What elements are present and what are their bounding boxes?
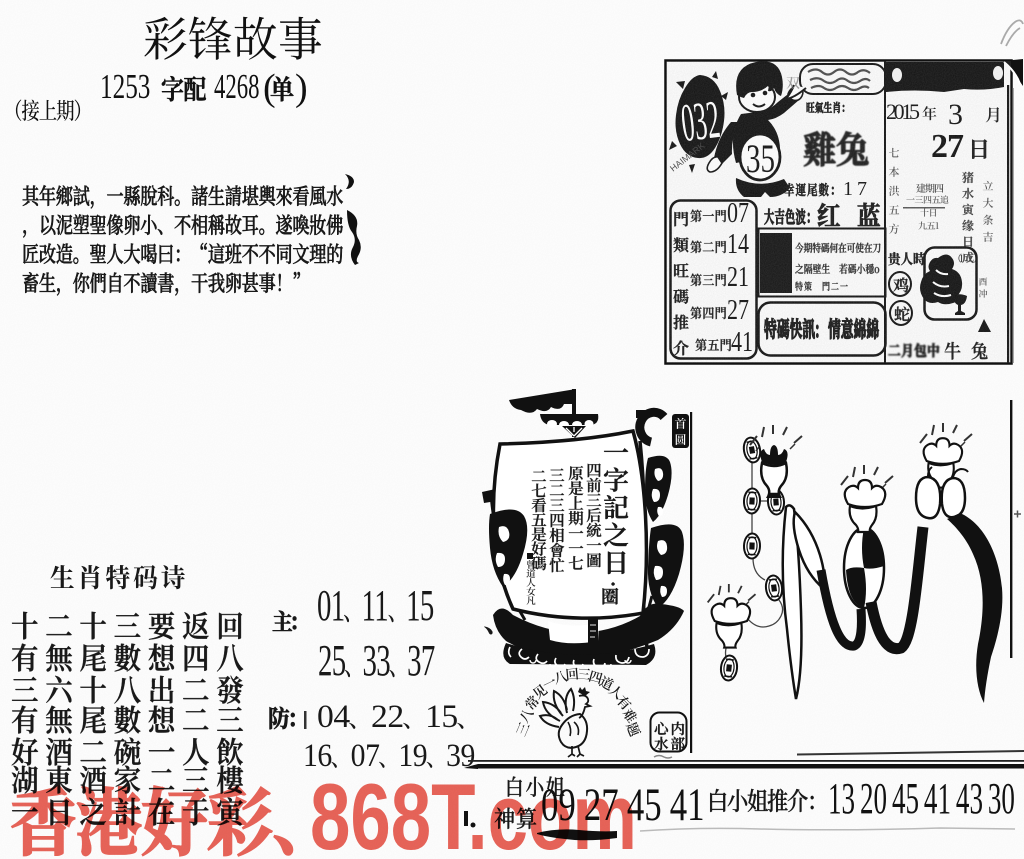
svg-text:): ) [295,67,308,109]
svg-text:30: 30 [988,773,1015,822]
svg-text:41: 41 [670,778,705,830]
svg-text:4268: 4268 [214,68,259,106]
svg-text:04: 04 [317,698,350,735]
svg-text:15: 15 [406,582,434,631]
svg-text:43: 43 [956,773,983,822]
svg-text:37: 37 [407,637,435,686]
svg-text:25: 25 [318,637,346,686]
svg-text:11: 11 [362,582,388,631]
svg-text:13: 13 [828,773,855,822]
svg-text:01: 01 [317,582,345,631]
svg-text:868T.com: 868T.com [310,764,637,859]
svg-text:33: 33 [363,637,391,686]
svg-text:20: 20 [860,773,887,822]
svg-text:22: 22 [371,698,404,735]
svg-text:15: 15 [425,698,458,735]
svg-text:1253: 1253 [100,67,150,106]
svg-text:45: 45 [892,773,919,822]
svg-text:41: 41 [924,773,951,822]
